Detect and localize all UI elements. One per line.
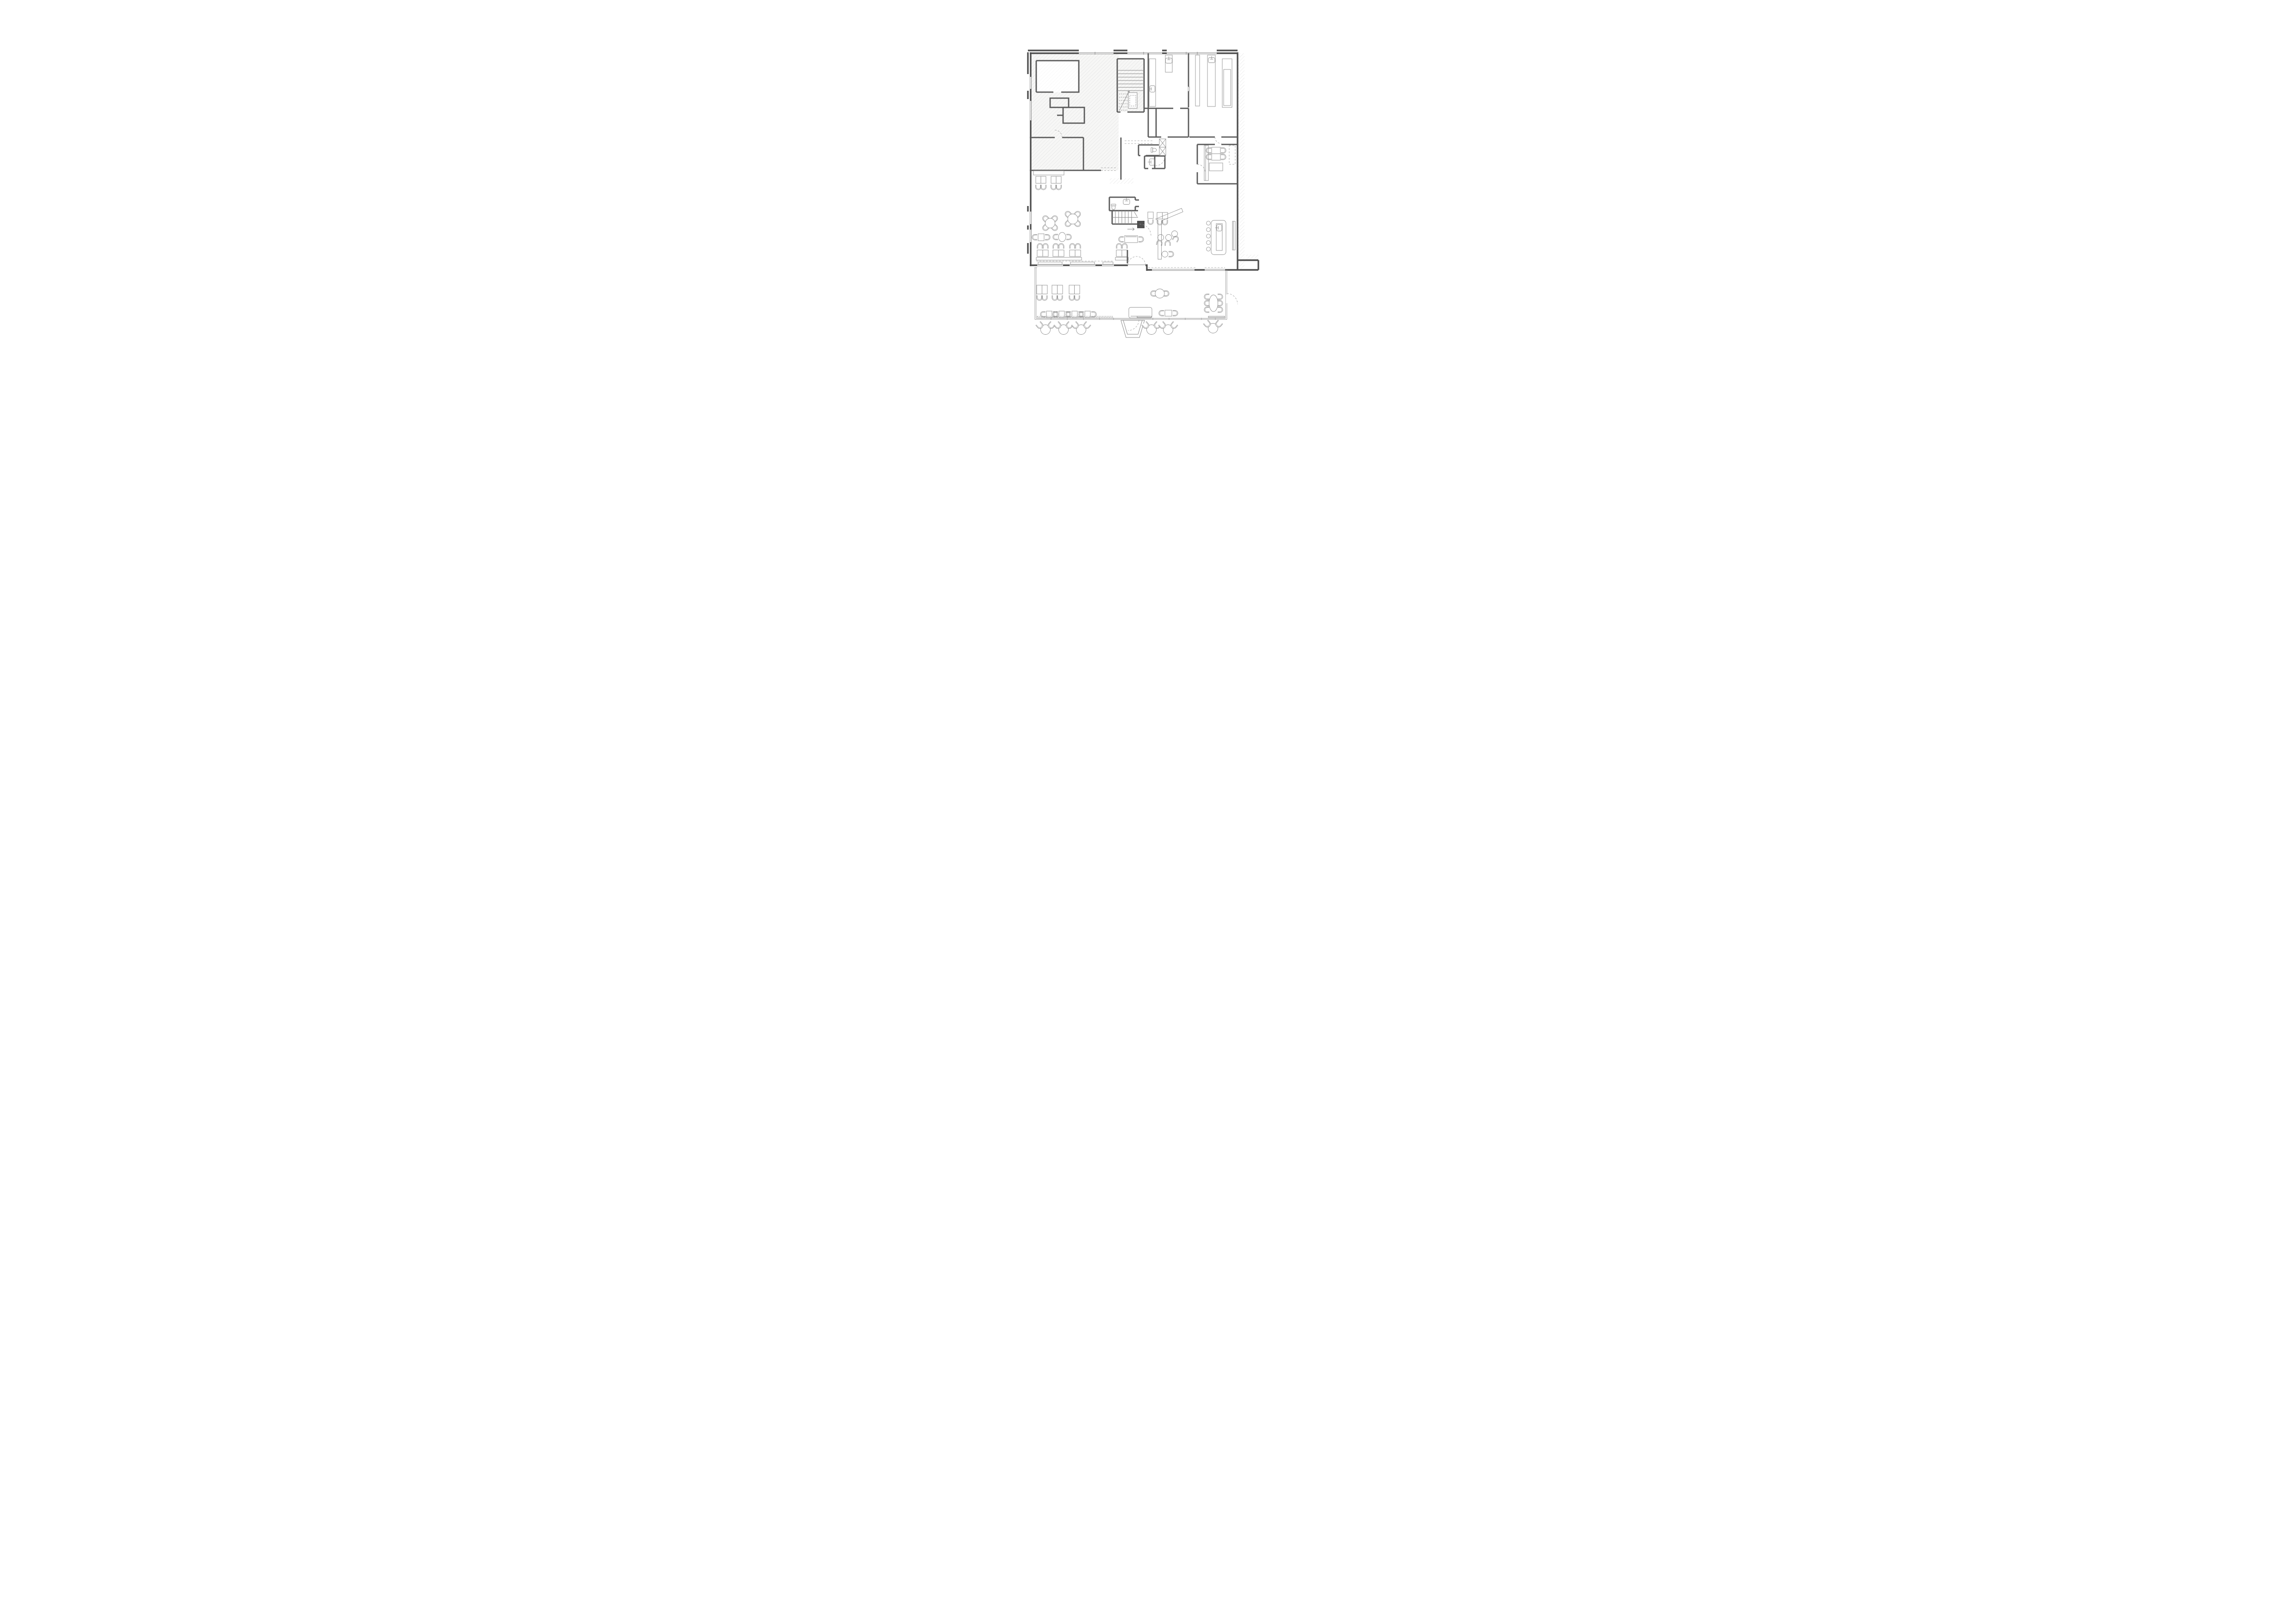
wall-counter <box>1232 221 1235 250</box>
heaters <box>1037 316 1225 318</box>
garden-glazing <box>1034 268 1227 320</box>
garden-table-row-a <box>1037 285 1080 300</box>
door-swing-arc-icon <box>1227 294 1238 304</box>
kitchen-counters <box>1149 55 1232 107</box>
angled-bench <box>1156 208 1183 259</box>
garden-right-section <box>1129 289 1223 318</box>
dashed-cabinet <box>1229 145 1235 164</box>
oval-table-6 <box>1209 295 1218 312</box>
lounge <box>1148 208 1235 268</box>
toilet-icon <box>1151 148 1157 152</box>
door-swing-arc-icon <box>1197 164 1205 172</box>
kitchen-door-leaf <box>1188 87 1189 92</box>
kitchen <box>1144 53 1238 144</box>
toilet-icon <box>1111 204 1116 210</box>
bar <box>1206 220 1226 255</box>
door-swing-arc-icon <box>1215 137 1221 144</box>
door-swing-arc-icon <box>1128 256 1145 265</box>
basin-icon <box>1148 159 1155 165</box>
round-table-4 <box>1041 214 1058 231</box>
basin-icon <box>1123 198 1130 205</box>
garden-table-row-b <box>1040 311 1096 318</box>
floor-plan-drawing <box>861 0 1435 406</box>
winter-garden <box>1034 268 1238 320</box>
terrace <box>1035 320 1222 337</box>
bar-stools <box>1206 221 1210 251</box>
wc-cluster <box>1121 137 1166 180</box>
floor-plan-sheet <box>861 0 1435 406</box>
round-table-4 <box>1064 210 1081 228</box>
two-seat-table <box>1032 234 1050 241</box>
two-seat-table <box>1053 232 1071 242</box>
entry-walkway <box>1121 320 1145 337</box>
neighbour-strip <box>1238 53 1258 269</box>
down-stair <box>1112 211 1151 236</box>
x-shaft-icon <box>1159 139 1166 156</box>
wall-block <box>1137 221 1145 228</box>
staff-room <box>1197 144 1238 184</box>
door-swing-arc-icon <box>1156 156 1165 166</box>
stair-up-arrow-icon <box>1127 228 1134 231</box>
entrance-hall <box>1109 197 1168 265</box>
west-banquette <box>1033 171 1064 190</box>
